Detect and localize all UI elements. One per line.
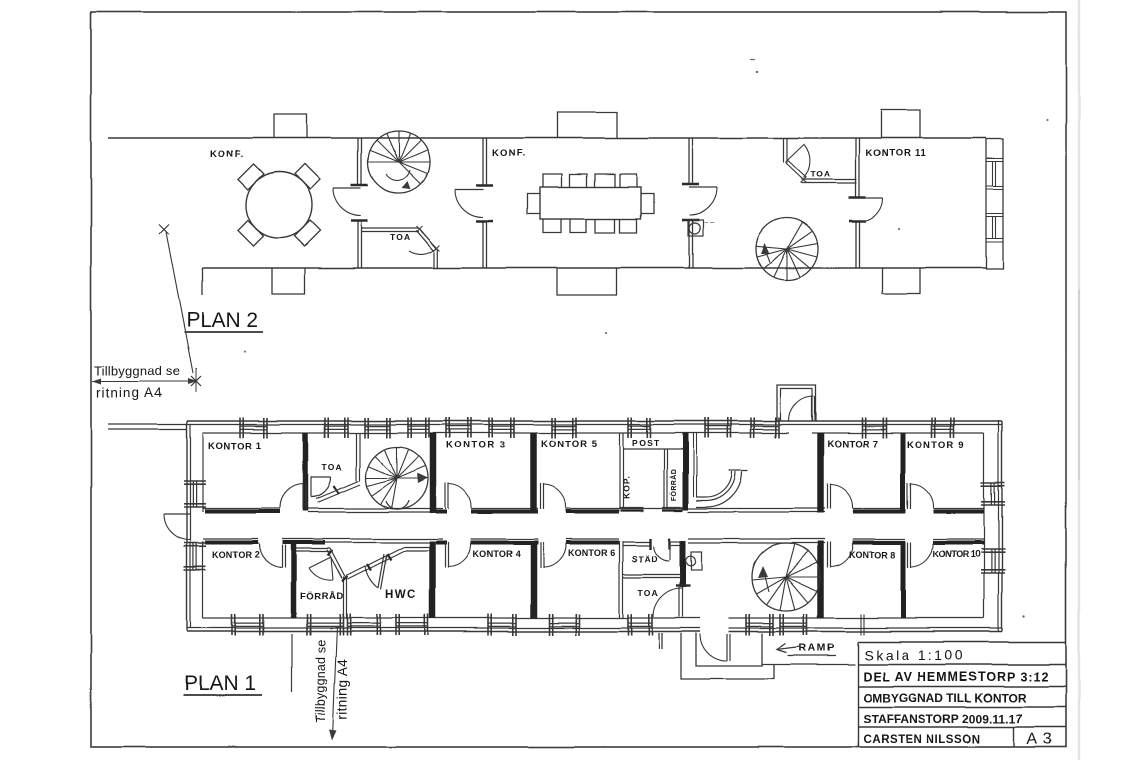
svg-text:KONTOR 3: KONTOR 3 xyxy=(446,440,506,451)
svg-text:ritning A4: ritning A4 xyxy=(96,385,162,400)
svg-text:TOA: TOA xyxy=(638,588,659,598)
svg-text:KOP.: KOP. xyxy=(621,475,631,499)
svg-text:KONTOR 4: KONTOR 4 xyxy=(473,549,521,559)
svg-text:DEL AV HEMMESTORP 3:12: DEL AV HEMMESTORP 3:12 xyxy=(863,670,1049,684)
svg-text:KONTOR 5: KONTOR 5 xyxy=(541,439,598,450)
svg-text:Tillbyggnad se: Tillbyggnad se xyxy=(94,363,180,378)
svg-text:KONF.: KONF. xyxy=(210,149,245,160)
svg-text:STAFFANSTORP 2009.11.17: STAFFANSTORP 2009.11.17 xyxy=(863,712,1023,726)
svg-text:TOA: TOA xyxy=(390,232,411,242)
svg-text:HWC: HWC xyxy=(385,589,417,601)
svg-text:KONTOR 6: KONTOR 6 xyxy=(568,548,616,558)
svg-text:ritning A4: ritning A4 xyxy=(335,659,350,719)
svg-text:KONTOR 7: KONTOR 7 xyxy=(827,439,879,450)
svg-text:KONTOR 10: KONTOR 10 xyxy=(933,549,981,559)
svg-text:Skala 1:100: Skala 1:100 xyxy=(864,647,964,663)
svg-text:TOA: TOA xyxy=(810,169,831,179)
svg-text:PLAN 1: PLAN 1 xyxy=(184,672,260,695)
svg-text:KONTOR 8: KONTOR 8 xyxy=(849,550,896,560)
svg-text:FÖRRÅD: FÖRRÅD xyxy=(669,469,678,501)
svg-text:STÄD: STÄD xyxy=(632,554,658,564)
svg-text:OMBYGGNAD TILL KONTOR: OMBYGGNAD TILL KONTOR xyxy=(863,691,1027,705)
svg-text:FÖRRÅD: FÖRRÅD xyxy=(300,591,344,602)
svg-text:KONTOR 2: KONTOR 2 xyxy=(212,550,260,560)
svg-text:CARSTEN NILSSON: CARSTEN NILSSON xyxy=(863,734,981,746)
svg-text:Tillbyggnad se: Tillbyggnad se xyxy=(314,640,328,723)
svg-text:RAMP: RAMP xyxy=(799,642,836,654)
svg-text:TOA: TOA xyxy=(322,462,343,472)
svg-text:KONTOR 11: KONTOR 11 xyxy=(866,148,927,159)
svg-text:A 3: A 3 xyxy=(1027,731,1053,748)
svg-text:KONTOR 9: KONTOR 9 xyxy=(907,440,965,451)
svg-text:POST: POST xyxy=(632,438,660,448)
svg-text:KONF.: KONF. xyxy=(492,148,527,159)
svg-text:KONTOR 1: KONTOR 1 xyxy=(208,441,262,452)
svg-text:PLAN 2: PLAN 2 xyxy=(186,309,262,332)
